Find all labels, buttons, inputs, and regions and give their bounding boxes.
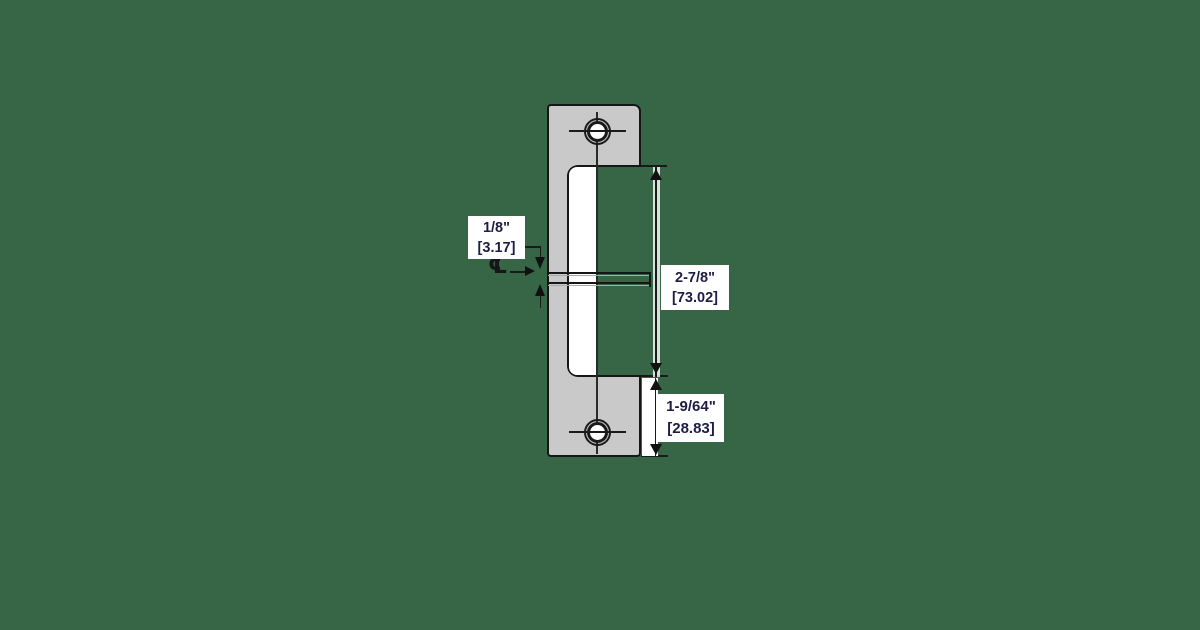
label-bottom-section-mm: [28.83]	[667, 418, 715, 440]
mounting-hole-top-crosshair	[569, 130, 626, 132]
label-opening-height-inches: 2-7/8"	[675, 268, 715, 288]
diagram-canvas: ℄ 1/8" [3.17] 2-7/8" [73.02] 1-9/64" [28…	[0, 0, 1200, 630]
dim-opening-height-arrow-down-icon	[650, 363, 662, 374]
label-bottom-section-inches: 1-9/64"	[666, 396, 716, 418]
offset-arrow-up-shaft	[540, 295, 542, 308]
label-opening-height: 2-7/8" [73.02]	[661, 265, 729, 310]
label-keeper-offset: 1/8" [3.17]	[468, 216, 525, 259]
dim-bottom-section-arrow-down-icon	[650, 444, 662, 455]
label-keeper-offset-mm: [3.17]	[478, 238, 516, 258]
dim-opening-height-line	[655, 167, 657, 377]
offset-arrow-down-icon	[535, 257, 545, 269]
dim-opening-height-arrow-up-icon	[650, 169, 662, 180]
label-opening-height-mm: [73.02]	[672, 288, 718, 308]
label-bottom-section: 1-9/64" [28.83]	[658, 394, 724, 442]
keeper-line-lower-shadow	[548, 285, 651, 287]
keeper-line-end-tick	[649, 272, 651, 287]
keeper-line-upper-shadow	[548, 275, 651, 277]
centerline-pointer-arrow-icon	[525, 266, 535, 276]
mounting-hole-bottom-crosshair	[569, 431, 626, 433]
label-keeper-offset-inches: 1/8"	[483, 218, 510, 238]
dim-bottom-section-arrow-up-icon	[650, 379, 662, 390]
centerline-symbol: ℄	[488, 256, 508, 278]
